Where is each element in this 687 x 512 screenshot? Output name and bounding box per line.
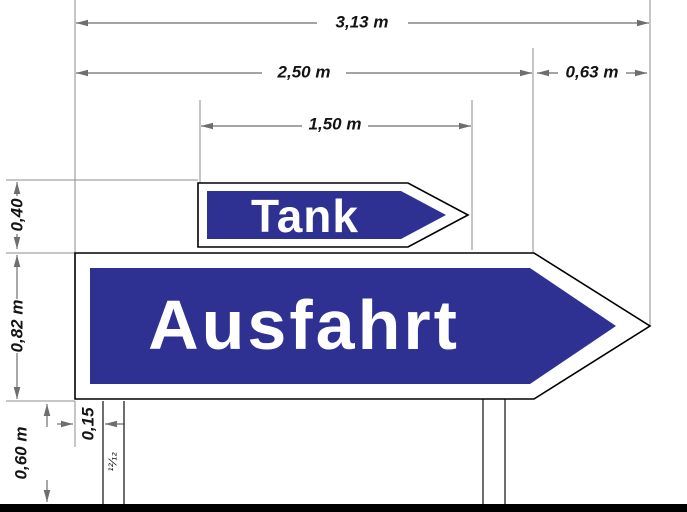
dimension-arrowhead-width: 0,63 m: [537, 63, 647, 82]
dimension-post-offset: 0,15: [57, 407, 125, 441]
dimension-label-tank-height: 0,40: [8, 198, 27, 232]
dimension-label-body-width: 2,50 m: [277, 63, 331, 82]
dimension-body-width: 2,50 m: [76, 63, 532, 82]
dimension-tank-width: 1,50 m: [201, 115, 471, 134]
dimension-ground-clearance: 0,60 m: [12, 404, 48, 502]
dimension-tank-height: 0,40: [8, 182, 27, 249]
sign-posts: ¹²⁄₁₂: [103, 399, 505, 504]
dimension-label-ausfahrt-height: 0,82 m: [8, 300, 27, 353]
dimension-ausfahrt-height: 0,82 m: [8, 255, 27, 399]
post-section-label: ¹²⁄₁₂: [107, 452, 120, 472]
ground-line: [0, 504, 687, 512]
tank-sign: Tank: [198, 183, 468, 247]
dimension-label-total-width: 3,13 m: [336, 13, 389, 32]
dimension-total-width: 3,13 m: [76, 13, 649, 32]
diagram-canvas: 3,13 m 2,50 m 0,63 m 1,50 m 0,40 0,82 m …: [0, 0, 687, 512]
dimension-label-post-offset: 0,15: [79, 407, 98, 441]
tank-sign-text: Tank: [251, 190, 359, 242]
dimension-label-ground-clearance: 0,60 m: [12, 427, 31, 480]
ausfahrt-sign: Ausfahrt: [75, 253, 650, 399]
dimension-label-arrowhead-width: 0,63 m: [566, 63, 619, 82]
ausfahrt-sign-text: Ausfahrt: [148, 286, 460, 364]
dimension-label-tank-width: 1,50 m: [309, 115, 362, 134]
sign-dimension-diagram: 3,13 m 2,50 m 0,63 m 1,50 m 0,40 0,82 m …: [0, 0, 687, 512]
